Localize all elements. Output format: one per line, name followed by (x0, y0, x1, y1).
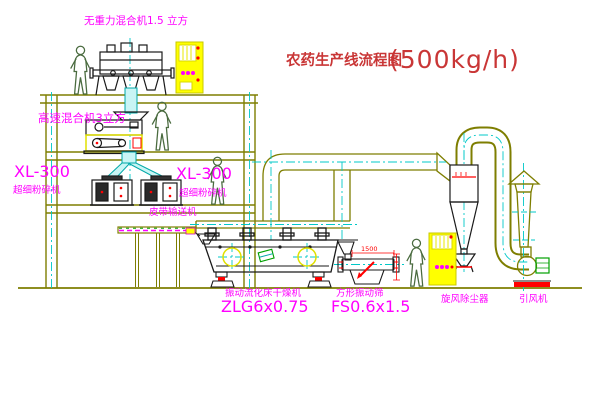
process-flow-diagram: 农药生产线流程图 (500kg/h) 无重力混合机1.5 立方 高速混合机3立方… (0, 0, 600, 403)
indicator-light (196, 56, 199, 59)
fluid-bed-dryer-machine (203, 228, 338, 287)
fan-base (514, 282, 550, 287)
mixer-discharge-pipe (125, 88, 137, 113)
belt-conveyor-machine (118, 227, 215, 287)
label-pulverizer-left-name: 超细粉碎机 (13, 184, 61, 196)
belt-guard-highlight (86, 135, 142, 151)
diagram-canvas: 农药生产线流程图 (500kg/h) 无重力混合机1.5 立方 高速混合机3立方… (0, 0, 600, 403)
indicator-light (451, 266, 454, 269)
indicator-light (196, 46, 199, 49)
y-splitter-duct (106, 152, 166, 178)
dryer-feet (211, 272, 331, 287)
stack-cap (509, 171, 539, 184)
label-pulverizer-left-model: XL-300 (14, 162, 70, 181)
exhaust-stack (517, 192, 531, 247)
label-belt-conveyor: 皮带输送机 (149, 206, 197, 218)
flow-arrow (360, 262, 374, 276)
duct-elbow (263, 154, 285, 176)
label-pulverizer-center-model: XL-300 (176, 164, 232, 183)
title-capacity: (500kg/h) (389, 45, 520, 74)
indicator-light (449, 235, 452, 238)
conveyor-legs (136, 233, 180, 287)
duct-network (196, 153, 450, 228)
label-gravity-free-mixer: 无重力混合机1.5 立方 (84, 14, 188, 27)
fan-motor (536, 258, 549, 273)
pulverizer-units (90, 176, 183, 205)
worker-figure (71, 46, 90, 94)
label-dryer-model: ZLG6x0.75 (221, 297, 309, 316)
page-title: 农药生产线流程图 (285, 51, 402, 69)
indicator-light (196, 78, 199, 81)
label-sieve-model: FS0.6x1.5 (331, 297, 410, 316)
cyclone-inlet-diffuser (437, 153, 450, 181)
vibration-motor (258, 249, 274, 261)
label-cyclone: 旋风除尘器 (441, 293, 489, 305)
pulverizer-left (90, 176, 134, 205)
control-cabinet-dryer (429, 233, 456, 285)
dimension-sieve-length: 1500 (361, 245, 378, 253)
label-fan: 引风机 (519, 293, 548, 305)
control-cabinet-top (176, 42, 203, 93)
worker-figure (152, 102, 171, 150)
worker-figure (407, 239, 425, 286)
label-high-speed-mixer: 高速混合机3立方 (38, 111, 126, 125)
label-pulverizer-center-name: 超细粉碎机 (179, 187, 227, 199)
